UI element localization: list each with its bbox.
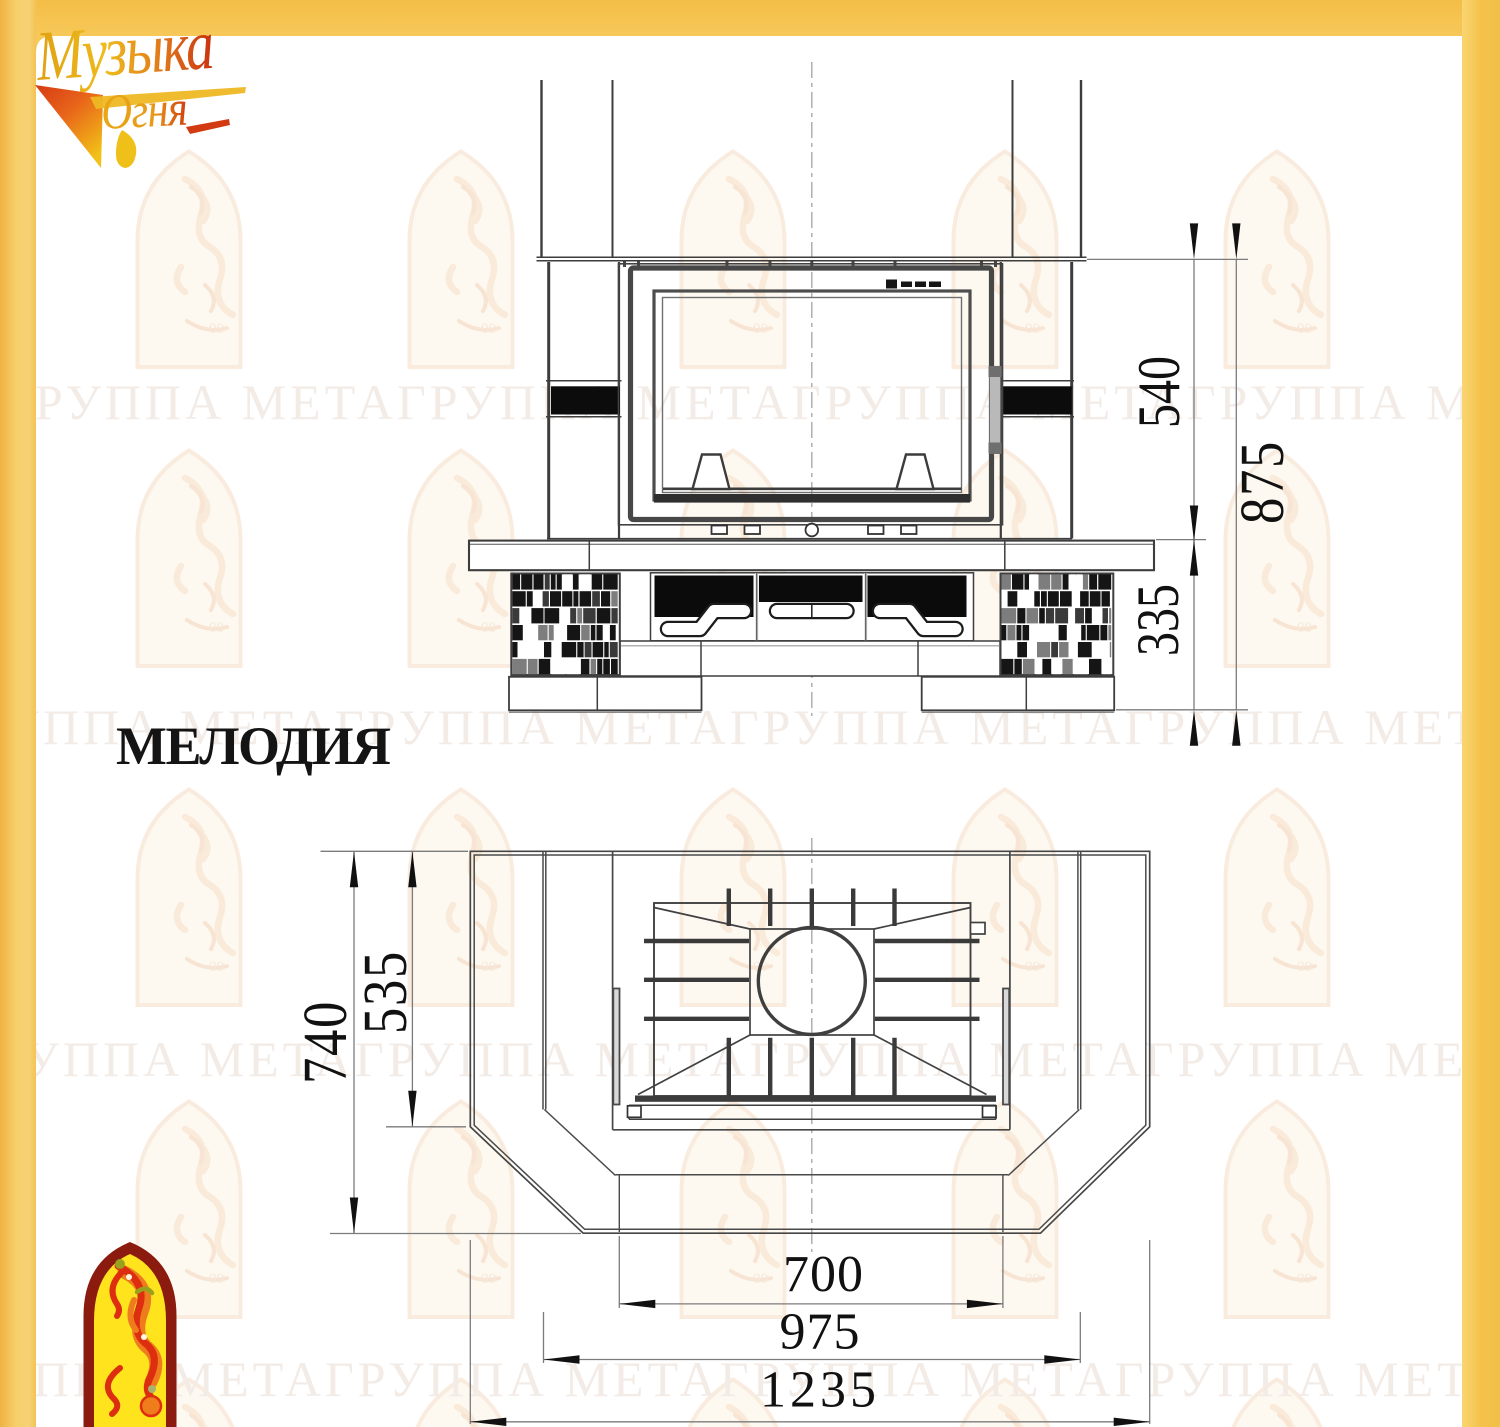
svg-text:Огня: Огня (100, 81, 189, 141)
svg-text:Музыка: Музыка (33, 5, 215, 96)
svg-text:ГРУППА МЕТАГРУППА МЕТАГРУППА М: ГРУППА МЕТАГРУППА МЕТАГРУППА МЕТАГРУППА … (2, 374, 1500, 430)
svg-text:1235: 1235 (760, 1362, 880, 1419)
svg-text:335: 335 (1125, 584, 1191, 656)
svg-text:МЕЛОДИЯ: МЕЛОДИЯ (116, 716, 391, 776)
svg-text:975: 975 (780, 1304, 861, 1361)
svg-text:535: 535 (352, 950, 420, 1034)
svg-text:540: 540 (1126, 356, 1192, 428)
svg-text:ГРУППА МЕТАГРУППА МЕТАГРУППА М: ГРУППА МЕТАГРУППА МЕТАГРУППА МЕТАГРУППА … (0, 1031, 1500, 1087)
svg-text:740: 740 (292, 1000, 360, 1084)
svg-text:875: 875 (1229, 440, 1297, 524)
svg-text:700: 700 (783, 1246, 864, 1303)
